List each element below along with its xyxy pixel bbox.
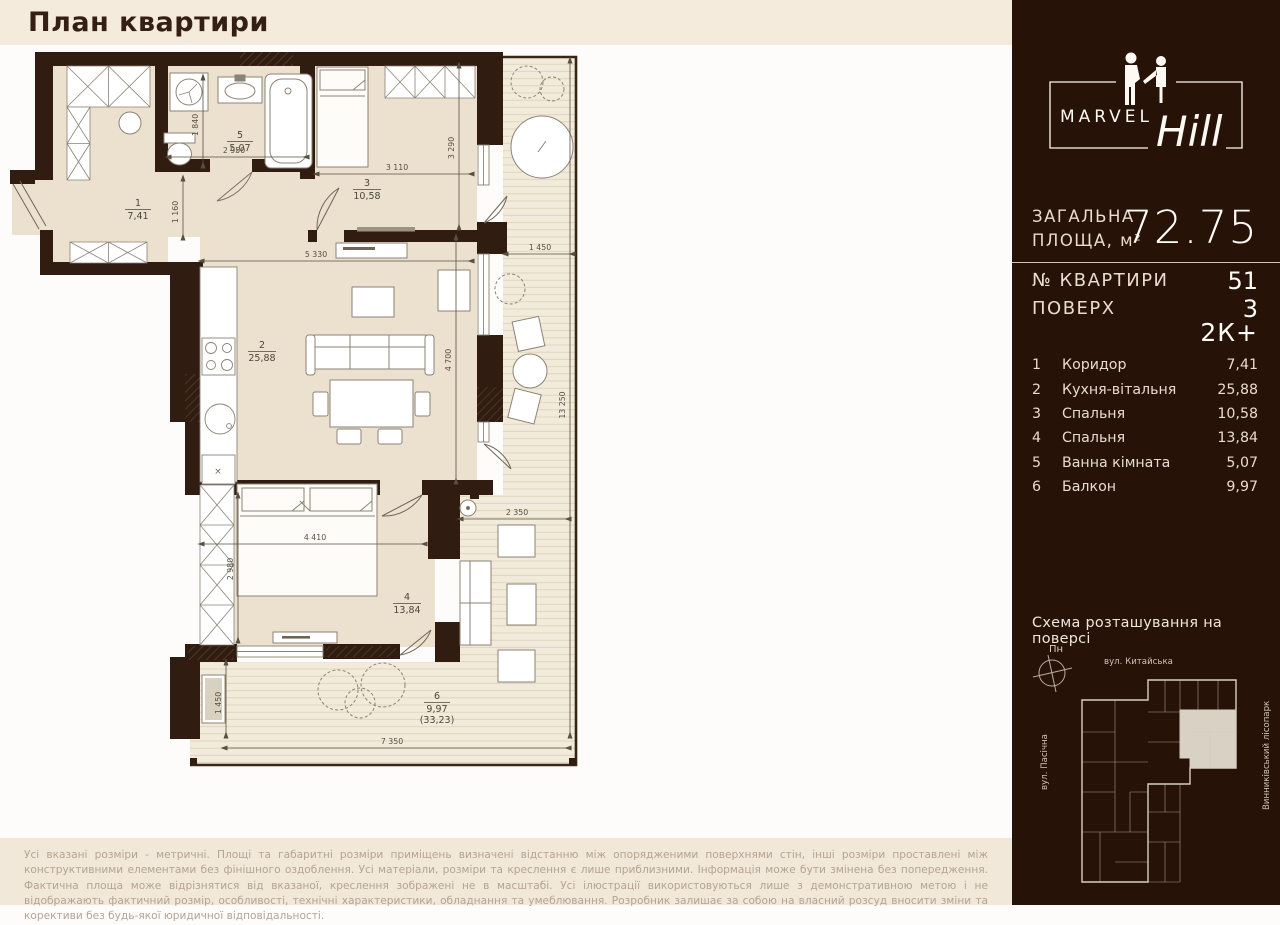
sidebar: MARVEL Hill ЗАГАЛЬНА ПЛОЩА, м² 72.75 № К…	[1012, 0, 1280, 905]
svg-text:9,97: 9,97	[426, 704, 447, 715]
apartment-number-label: № КВАРТИРИ	[1032, 270, 1169, 291]
svg-text:2 350: 2 350	[506, 508, 528, 517]
layout-type: 2К+	[1200, 318, 1258, 347]
floor-row: ПОВЕРХ 3	[1032, 298, 1258, 319]
small-table	[513, 354, 547, 388]
svg-text:3 290: 3 290	[447, 137, 456, 159]
svg-text:2 950: 2 950	[223, 146, 245, 155]
tv-bedroom3	[357, 227, 415, 232]
disclaimer-text: Усі вказані розміри - метричні. Площі та…	[24, 848, 988, 925]
outdoor-sofa	[460, 561, 491, 645]
svg-text:1 450: 1 450	[214, 692, 223, 714]
street-label-top: вул. Китайська	[1104, 657, 1173, 667]
brand-script: Hill	[1156, 107, 1223, 156]
svg-text:1: 1	[135, 198, 141, 209]
brand-logo: MARVEL Hill	[1012, 48, 1280, 168]
svg-text:1 450: 1 450	[529, 243, 551, 252]
svg-text:25,88: 25,88	[248, 353, 275, 364]
sofa-icon	[306, 335, 434, 375]
sidebar-divider	[1012, 262, 1280, 263]
room-list-item: 3Спальня10,58	[1032, 402, 1258, 426]
floor-label: ПОВЕРХ	[1032, 298, 1116, 319]
svg-text:7,41: 7,41	[127, 211, 148, 222]
svg-text:4: 4	[404, 592, 410, 603]
svg-text:1 160: 1 160	[171, 201, 180, 223]
floor-scheme-plan	[1070, 672, 1242, 901]
apartment-number-row: № КВАРТИРИ 51	[1032, 270, 1258, 291]
header-band: План квартири	[0, 0, 1012, 45]
page: План квартири Пн	[0, 0, 1280, 905]
svg-text:3 110: 3 110	[386, 163, 408, 172]
street-label-left: вул. Пасічна	[1040, 695, 1050, 790]
svg-text:5 330: 5 330	[305, 250, 327, 259]
svg-text:13,84: 13,84	[393, 605, 420, 616]
room-list: 1Коридор7,41 2Кухня-вітальня25,88 3Спаль…	[1032, 353, 1258, 499]
room-list-item: 4Спальня13,84	[1032, 426, 1258, 450]
svg-text:4 700: 4 700	[444, 349, 453, 371]
svg-text:2 980: 2 980	[226, 558, 235, 580]
mini-compass-label: Пн	[1049, 644, 1063, 655]
svg-text:5: 5	[237, 130, 243, 141]
svg-text:4 410: 4 410	[304, 533, 326, 542]
room-list-item: 6Балкон9,97	[1032, 475, 1258, 499]
svg-text:7 350: 7 350	[381, 737, 403, 746]
bed-single	[317, 67, 368, 167]
svg-text:(33,23): (33,23)	[420, 715, 455, 726]
bathtub-icon	[265, 74, 312, 168]
logo-figures-icon	[1125, 53, 1166, 106]
park-label-right: Винниківський лісопарк	[1262, 685, 1272, 810]
console-living	[336, 243, 407, 258]
apartment-number-value: 51	[1227, 267, 1258, 295]
mini-compass-icon	[1033, 655, 1072, 692]
floor-plan: ×	[0, 45, 600, 824]
tv-stand	[438, 270, 470, 311]
svg-text:1 840: 1 840	[191, 114, 200, 136]
kitchen-counter: ×	[200, 267, 237, 484]
room-list-item: 1Коридор7,41	[1032, 353, 1258, 377]
svg-text:13 250: 13 250	[558, 391, 567, 418]
room-list-item: 5Ванна кімната5,07	[1032, 451, 1258, 475]
total-area-value: 72.75	[1124, 201, 1258, 254]
brand-caps: MARVEL	[1060, 107, 1153, 127]
disclaimer-band: Усі вказані розміри - метричні. Площі та…	[0, 838, 1012, 905]
room-list-item: 2Кухня-вітальня25,88	[1032, 377, 1258, 401]
svg-text:3: 3	[364, 178, 370, 189]
stool-icon	[119, 112, 141, 134]
svg-text:2: 2	[259, 340, 265, 351]
deck-chair	[512, 316, 545, 351]
page-title: План квартири	[0, 0, 1012, 38]
total-area-block: ЗАГАЛЬНА ПЛОЩА, м² 72.75	[1032, 205, 1258, 253]
highlighted-apartment	[1180, 710, 1236, 768]
svg-text:×: ×	[214, 467, 222, 477]
svg-text:10,58: 10,58	[353, 191, 380, 202]
svg-text:6: 6	[434, 691, 440, 702]
